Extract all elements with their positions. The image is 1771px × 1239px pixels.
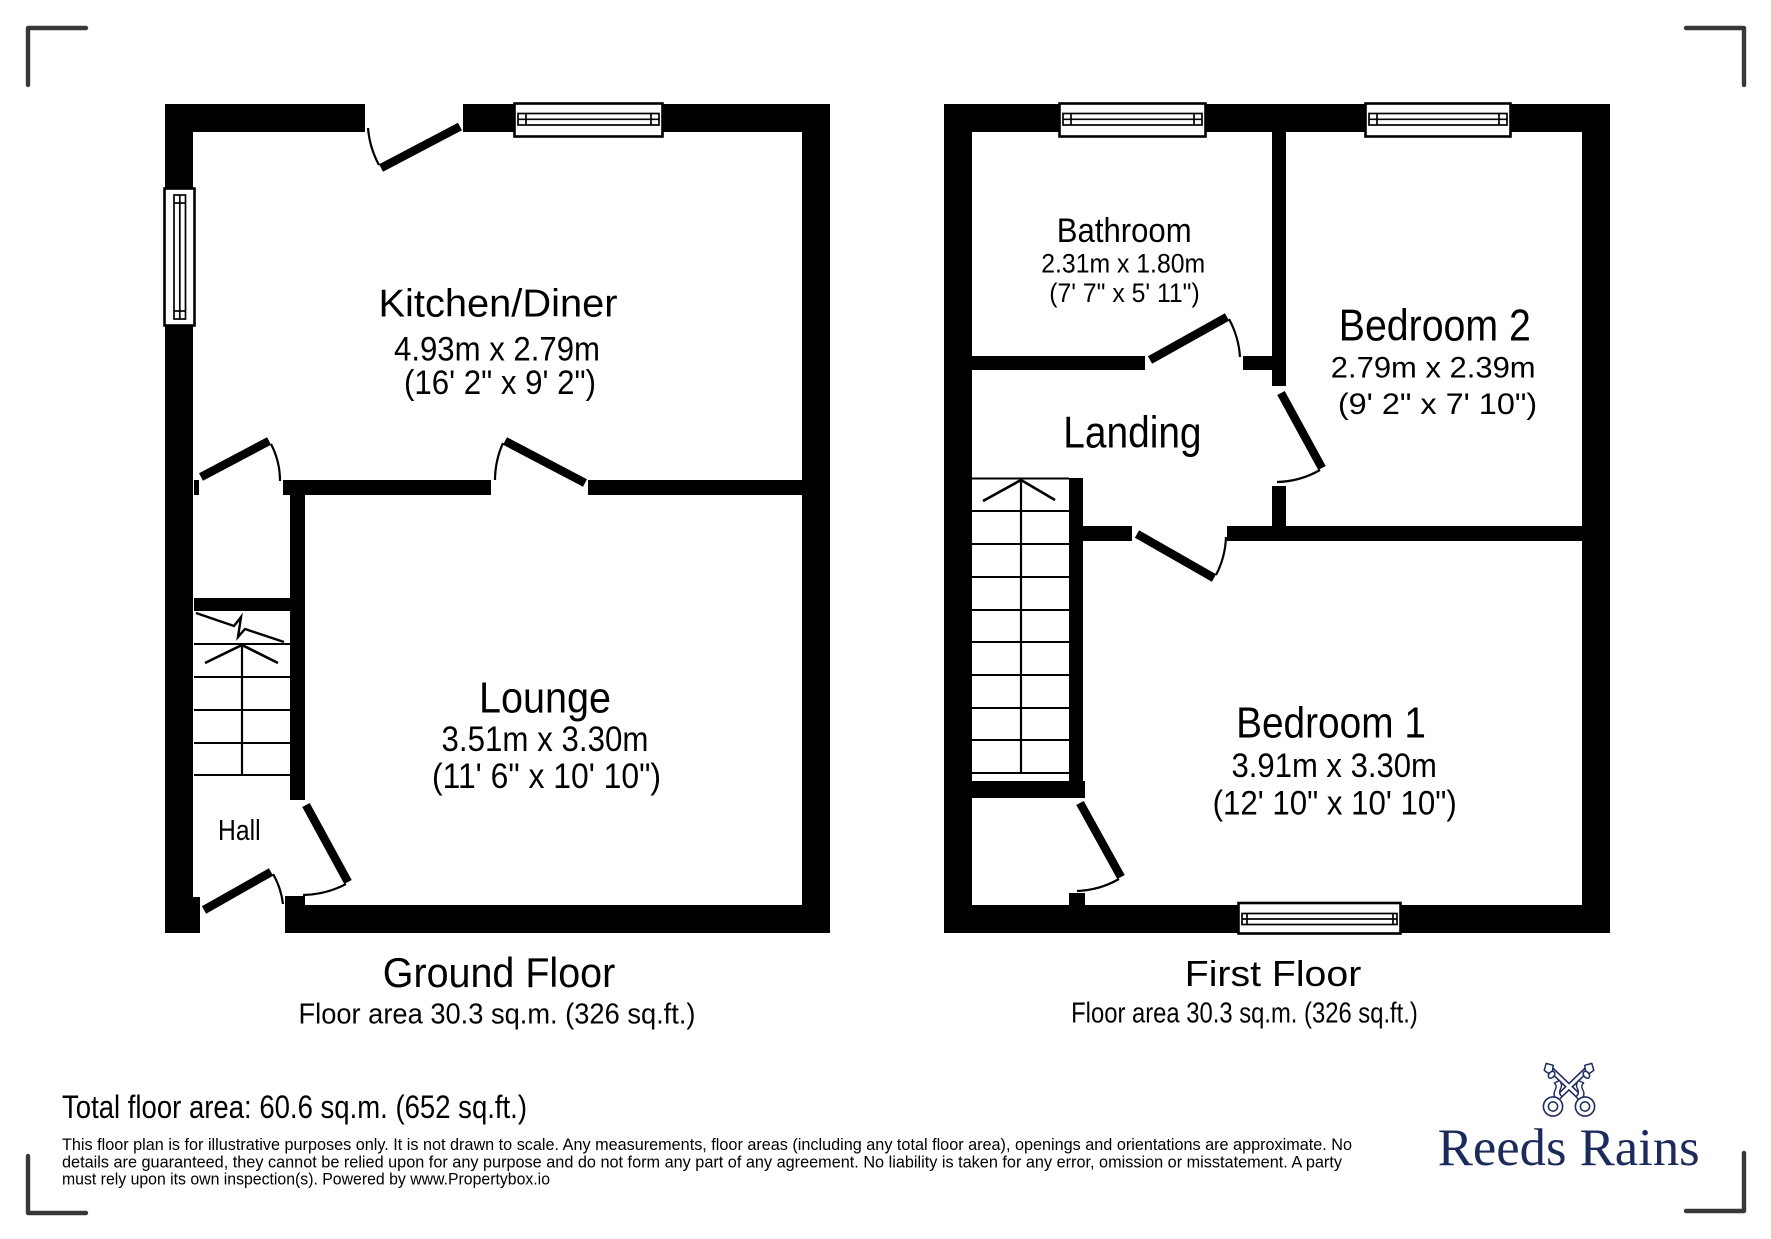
svg-text:Bedroom 1: Bedroom 1 [1236,699,1426,747]
svg-text:Kitchen/Diner: Kitchen/Diner [379,283,618,326]
svg-text:(16' 2" x 9' 2"): (16' 2" x 9' 2") [404,364,596,402]
svg-text:4.93m x 2.79m: 4.93m x 2.79m [394,331,600,369]
svg-text:2.79m x 2.39m: 2.79m x 2.39m [1331,352,1536,385]
svg-text:must rely upon its own inspect: must rely upon its own inspection(s). Po… [62,1171,550,1189]
svg-text:(9' 2" x 7' 10"): (9' 2" x 7' 10") [1338,388,1537,421]
svg-text:First Floor: First Floor [1185,953,1362,994]
svg-text:3.51m x 3.30m: 3.51m x 3.30m [442,719,649,759]
svg-text:(12' 10" x 10' 10"): (12' 10" x 10' 10") [1213,785,1457,823]
svg-text:Total floor area: 60.6 sq.m. (: Total floor area: 60.6 sq.m. (652 sq.ft.… [62,1088,527,1125]
svg-text:(7' 7" x 5' 11"): (7' 7" x 5' 11") [1049,278,1199,308]
svg-text:details are guaranteed, they c: details are guaranteed, they cannot be r… [62,1153,1343,1171]
svg-text:Hall: Hall [218,815,261,847]
svg-text:Floor area 30.3 sq.m. (326 sq.: Floor area 30.3 sq.m. (326 sq.ft.) [1071,998,1418,1030]
svg-text:3.91m x 3.30m: 3.91m x 3.30m [1232,747,1437,785]
svg-text:Lounge: Lounge [479,675,611,723]
svg-text:2.31m x 1.80m: 2.31m x 1.80m [1041,248,1205,278]
svg-text:This floor plan is for illustr: This floor plan is for illustrative purp… [62,1136,1352,1154]
svg-text:Bedroom 2: Bedroom 2 [1339,302,1531,351]
svg-text:Bathroom: Bathroom [1057,212,1192,250]
svg-text:Floor area 30.3 sq.m. (326 sq.: Floor area 30.3 sq.m. (326 sq.ft.) [299,999,696,1031]
svg-text:(11' 6" x 10' 10"): (11' 6" x 10' 10") [432,756,661,796]
svg-text:Landing: Landing [1063,409,1201,458]
svg-text:Ground Floor: Ground Floor [383,949,616,996]
svg-text:Reeds Rains: Reeds Rains [1438,1119,1700,1177]
